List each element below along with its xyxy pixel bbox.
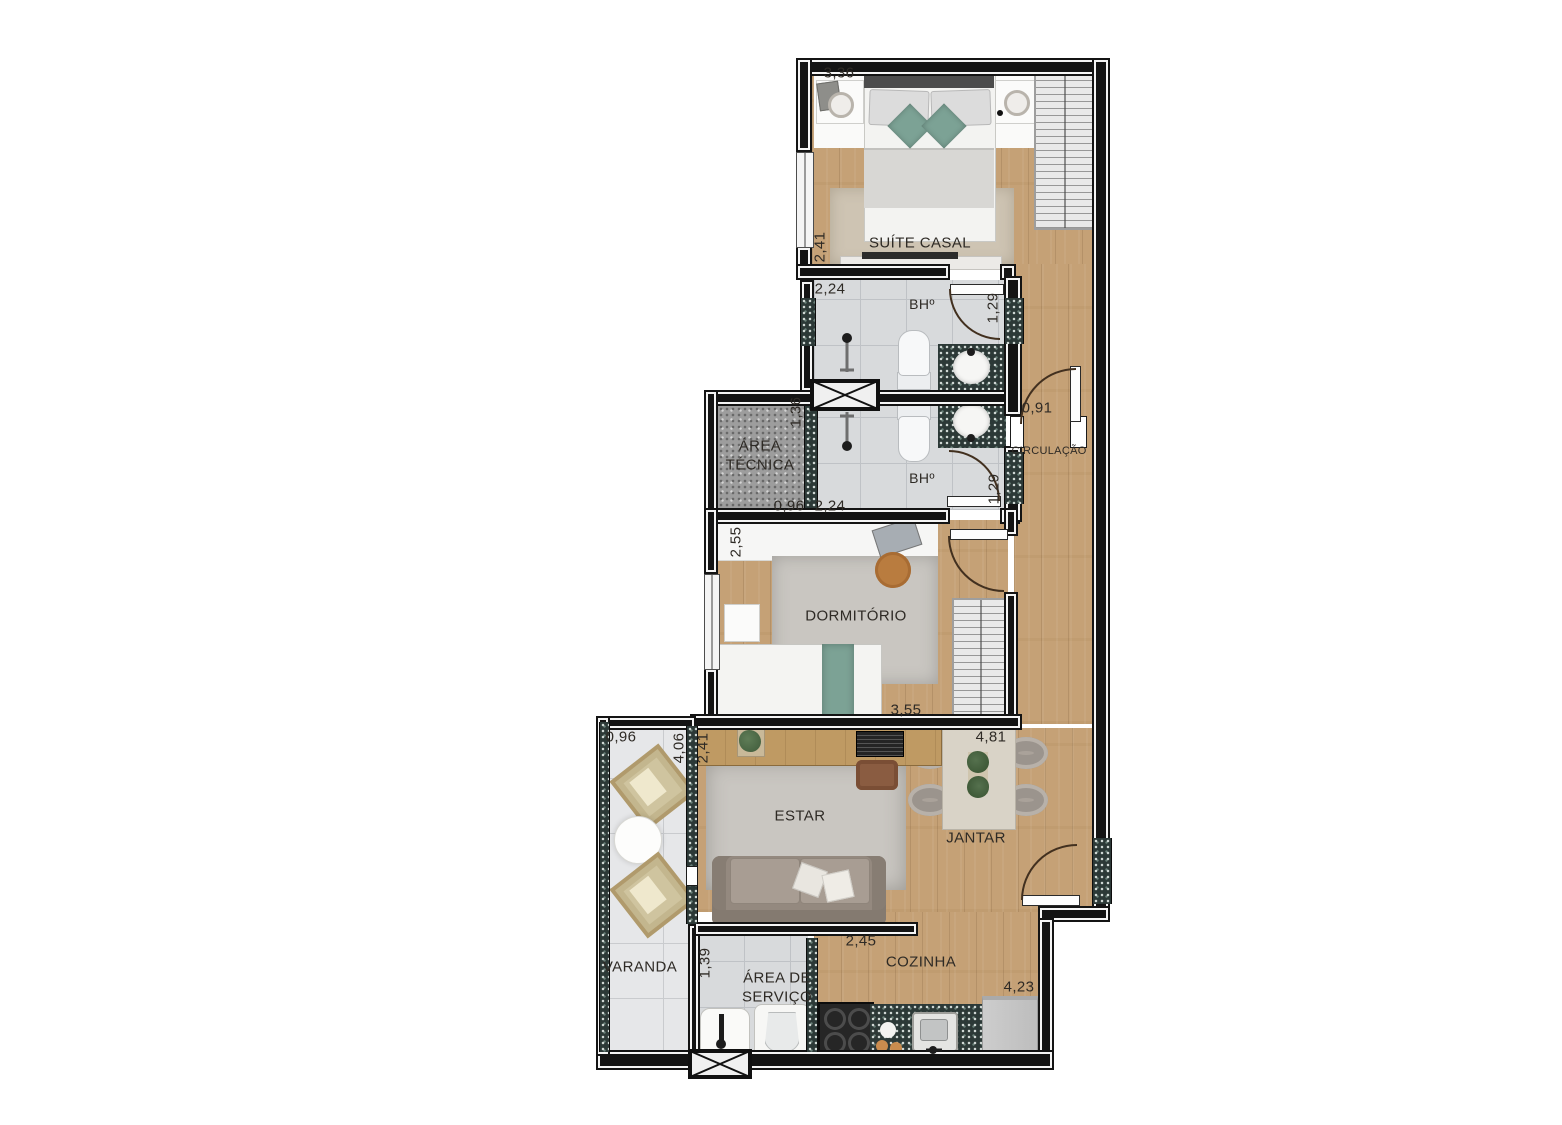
dim-area-tecnica-width: 0,96 [774,498,805,515]
wall [1004,276,1022,416]
dorm-teal-runner [822,644,854,722]
dim-varanda-width: 0,96 [606,729,637,746]
granite-wall-segment [1004,452,1024,504]
bh2-sink [953,404,990,438]
estar-console [694,726,942,766]
wall [694,922,918,936]
suite-tv [862,252,958,259]
label-estar: ESTAR [775,808,826,825]
label-area-servico: ÁREA DE SERVIÇO [732,969,822,1007]
dim-bh2-depth: 1,29 [986,474,1003,505]
granite-wall-segment [1092,838,1112,904]
stove-burner-1 [824,1008,846,1030]
wall [1004,592,1018,728]
dim-dormitorio-width: 3,55 [891,702,922,719]
dim-estar-width: 2,45 [846,933,877,950]
wall [1092,58,1110,922]
suite-switch-dot [997,110,1003,116]
stove-burner-2 [848,1008,870,1030]
dim-jantar-width: 4,81 [976,729,1007,746]
estar-armchair-brown [856,760,898,790]
wall [1038,918,1054,1058]
wall [688,924,700,1054]
washer-basket [764,1012,800,1052]
circulation-door-leaf [1070,366,1081,422]
dorm-window [704,574,720,670]
label-varanda: VARANDA [603,959,677,976]
label-bathroom2: BHº [909,470,935,486]
dim-circ-door: 0,91 [1022,400,1053,417]
dorm-stool [875,552,911,588]
granite-wall-segment [804,406,818,508]
dim-servico-depth: 1,39 [697,948,714,979]
wall [796,58,812,152]
wall [690,714,1022,730]
dim-bh1-width: 2,24 [815,281,846,298]
wall [596,1050,1054,1070]
label-bathroom1: BHº [909,296,935,312]
label-suite: SUÍTE CASAL [869,235,971,252]
wall [704,390,718,524]
kitchen-sink-basin [920,1019,948,1041]
entry-door-leaf [1022,895,1080,906]
dim-area-tecnica-depth: 1,36 [788,397,805,428]
dim-estar-depth: 2,41 [695,733,712,764]
dorm-door-leaf [950,529,1008,540]
dining-plant-2 [967,776,989,798]
door-jamb [1010,416,1024,448]
sofa-throw-pillow-2 [821,869,854,902]
dim-suite-depth: 2,41 [812,232,829,263]
suite-lamp-right [1004,90,1030,116]
dim-bh1-depth: 1,29 [985,293,1002,324]
dim-cozinha-width: 4,23 [1004,979,1035,996]
dorm-side-table [724,604,760,642]
label-jantar: JANTAR [946,830,1006,847]
dim-bh2-width: 2,24 [815,498,846,515]
label-circulacao: CIRCULAÇÃO [1011,445,1086,457]
circulation-floor [1014,264,1094,724]
bh2-toilet-bowl [898,416,930,462]
suite-wardrobe [1034,72,1096,230]
label-cozinha: COZINHA [886,954,956,971]
slider-jamb [686,866,698,886]
wall [796,264,950,280]
kitchen-decor-ball [880,1022,896,1038]
dorm-single-bed [714,644,882,724]
dorm-wardrobe [952,598,1010,728]
varanda-glass-rail [599,722,610,1052]
label-dormitorio: DORMITÓRIO [805,608,907,625]
granite-wall-segment [800,298,816,346]
bh1-sink [953,350,990,384]
sofa-cushion-left [730,858,800,904]
wall [810,390,1008,406]
suite-bed-blanket [864,148,994,208]
bh1-toilet-bowl [898,330,930,376]
floorplan-canvas: SUÍTE CASAL BHº BHº ÁREA TÉCNICA CIRCULA… [0,0,1562,1125]
dining-plant-1 [967,751,989,773]
estar-plant [739,730,761,752]
granite-wall-segment [1004,298,1024,344]
estar-tv [856,731,904,757]
label-area-tecnica: ÁREA TÉCNICA [720,437,800,475]
dim-varanda-depth: 4,06 [671,733,688,764]
suite-lamp-left [828,92,854,118]
dim-dormitorio-depth: 2,55 [728,527,745,558]
wall [704,508,718,574]
dim-suite-width: 3,36 [824,65,855,82]
